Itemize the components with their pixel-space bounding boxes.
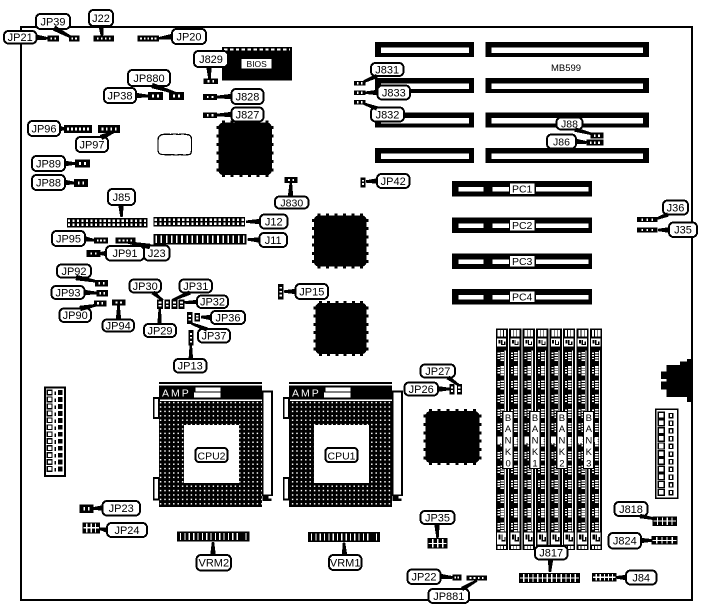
svg-text:N: N [558,436,565,447]
svg-text:CPU2: CPU2 [197,450,225,462]
svg-text:J35: J35 [674,225,692,237]
svg-text:K: K [559,447,566,458]
svg-text:A: A [505,424,512,435]
svg-text:J833: J833 [382,88,406,100]
svg-text:A: A [532,424,539,435]
svg-text:JP27: JP27 [425,366,450,378]
svg-text:N: N [532,436,539,447]
svg-text:JP91: JP91 [112,248,137,260]
svg-text:JP35: JP35 [425,513,450,525]
svg-text:J85: J85 [113,192,131,204]
svg-text:K: K [532,447,539,458]
svg-text:J22: J22 [92,13,110,25]
svg-text:JP94: JP94 [106,321,131,333]
svg-text:JP13: JP13 [178,361,203,373]
svg-text:J824: J824 [613,536,637,548]
svg-text:JP37: JP37 [201,331,226,343]
svg-text:JP21: JP21 [8,32,33,44]
svg-text:JP23: JP23 [109,503,134,515]
svg-text:JP42: JP42 [381,176,406,188]
svg-text:K: K [586,447,593,458]
svg-text:JP90: JP90 [63,310,88,322]
svg-text:JP39: JP39 [40,17,65,29]
svg-text:JP32: JP32 [200,297,225,309]
svg-text:J84: J84 [632,573,650,585]
svg-text:JP26: JP26 [409,384,434,396]
svg-text:J23: J23 [148,248,166,260]
svg-text:JP30: JP30 [133,281,158,293]
svg-text:JP29: JP29 [147,326,172,338]
svg-text:JP93: JP93 [55,288,80,300]
svg-text:JP20: JP20 [176,32,201,44]
svg-text:J827: J827 [236,110,260,122]
svg-text:JP96: JP96 [31,124,56,136]
svg-text:N: N [505,436,512,447]
svg-text:B: B [532,413,538,424]
svg-text:PC3: PC3 [512,256,533,268]
svg-text:2: 2 [559,458,564,469]
svg-text:K: K [505,447,512,458]
svg-text:N: N [585,436,592,447]
svg-text:1: 1 [532,458,537,469]
svg-text:JP15: JP15 [299,287,324,299]
svg-text:JP22: JP22 [411,572,436,584]
svg-text:JP97: JP97 [79,140,104,152]
svg-text:JP89: JP89 [36,159,61,171]
svg-text:AMP: AMP [292,388,321,400]
svg-text:VRM1: VRM1 [330,558,361,570]
svg-text:J12: J12 [265,217,283,229]
svg-text:A: A [559,424,566,435]
svg-text:3: 3 [586,458,591,469]
svg-text:B: B [505,413,511,424]
svg-text:J830: J830 [280,197,303,209]
svg-text:J832: J832 [376,110,400,122]
svg-text:JP881: JP881 [433,591,464,603]
svg-text:J817: J817 [539,548,563,560]
svg-text:J818: J818 [619,504,643,516]
svg-text:JP24: JP24 [114,525,139,537]
svg-text:JP31: JP31 [183,281,208,293]
svg-text:AMP: AMP [162,388,191,400]
svg-text:B: B [559,413,565,424]
svg-text:JP36: JP36 [215,313,240,325]
svg-text:A: A [586,424,593,435]
svg-text:CPU1: CPU1 [327,450,355,462]
svg-text:PC2: PC2 [512,220,533,232]
svg-text:PC1: PC1 [512,184,533,196]
svg-text:JP880: JP880 [133,73,164,85]
svg-text:J11: J11 [265,235,282,247]
svg-text:B: B [586,413,592,424]
svg-text:VRM2: VRM2 [199,558,230,570]
svg-text:0: 0 [505,458,510,469]
svg-text:J831: J831 [375,65,399,77]
svg-text:JP92: JP92 [61,266,86,278]
svg-text:JP95: JP95 [56,234,81,246]
svg-text:JP38: JP38 [107,91,132,103]
svg-text:J829: J829 [199,54,223,66]
svg-text:PC4: PC4 [512,292,533,304]
svg-text:JP88: JP88 [36,178,61,190]
svg-text:J828: J828 [236,92,260,104]
svg-text:J86: J86 [553,136,570,148]
svg-text:J36: J36 [667,203,685,215]
svg-text:MB599: MB599 [551,63,581,74]
svg-text:BIOS: BIOS [247,59,268,69]
